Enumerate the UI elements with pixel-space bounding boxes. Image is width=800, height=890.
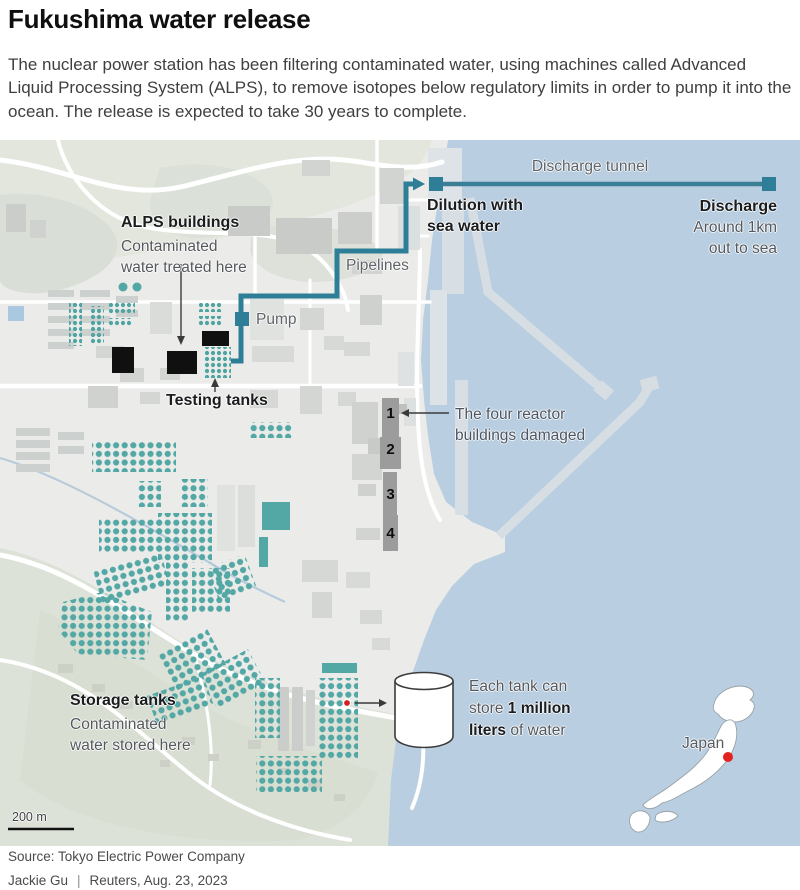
- byline-row: Jackie Gu | Reuters, Aug. 23, 2023: [8, 873, 792, 888]
- discharge-label-block: Discharge Around 1km out to sea: [693, 196, 777, 259]
- footer: Source: Tokyo Electric Power Company Jac…: [8, 849, 792, 888]
- credit-date: Reuters, Aug. 23, 2023: [90, 873, 228, 888]
- japan-location-dot: [723, 752, 733, 762]
- pump-label: Pump: [256, 309, 297, 330]
- reactor-number-3: 3: [382, 486, 399, 503]
- alps-label-block: ALPS buildings Contaminated water treate…: [121, 212, 247, 278]
- pump-node: [235, 312, 249, 326]
- dilution-label: Dilution with sea water: [427, 195, 523, 237]
- page-title: Fukushima water release: [8, 4, 794, 35]
- reactor-number-4: 4: [382, 525, 399, 542]
- dilution-node: [429, 177, 443, 191]
- byline-separator: |: [77, 873, 81, 888]
- alps-label: ALPS buildings: [121, 212, 247, 233]
- author: Jackie Gu: [8, 873, 68, 888]
- site-map: Discharge tunnel Dilution with sea water…: [0, 140, 800, 846]
- tank-capacity-note: Each tank can store 1 million liters of …: [469, 676, 571, 742]
- header: Fukushima water release The nuclear powe…: [8, 4, 794, 123]
- scale-bar-label: 200 m: [12, 807, 47, 828]
- japan-label: Japan: [682, 733, 724, 754]
- discharge-label: Discharge: [693, 196, 777, 217]
- reactor-number-2: 2: [382, 441, 399, 458]
- storage-location-dot: [343, 699, 350, 706]
- infographic-page: Fukushima water release The nuclear powe…: [0, 0, 800, 890]
- tank-cylinder-illustration: [395, 673, 453, 748]
- source-line: Source: Tokyo Electric Power Company: [8, 849, 792, 864]
- discharge-node: [762, 177, 776, 191]
- testing-tank-dots: [203, 347, 231, 378]
- discharge-tunnel-label: Discharge tunnel: [500, 156, 680, 177]
- storage-label-block: Storage tanks Contaminated water stored …: [70, 690, 191, 756]
- testing-tanks-label: Testing tanks: [166, 390, 268, 411]
- reactor-note: The four reactor buildings damaged: [455, 404, 585, 446]
- storage-tanks-label: Storage tanks: [70, 690, 191, 711]
- pipelines-label: Pipelines: [346, 255, 409, 276]
- reactor-number-1: 1: [382, 405, 399, 422]
- intro-paragraph: The nuclear power station has been filte…: [8, 53, 794, 123]
